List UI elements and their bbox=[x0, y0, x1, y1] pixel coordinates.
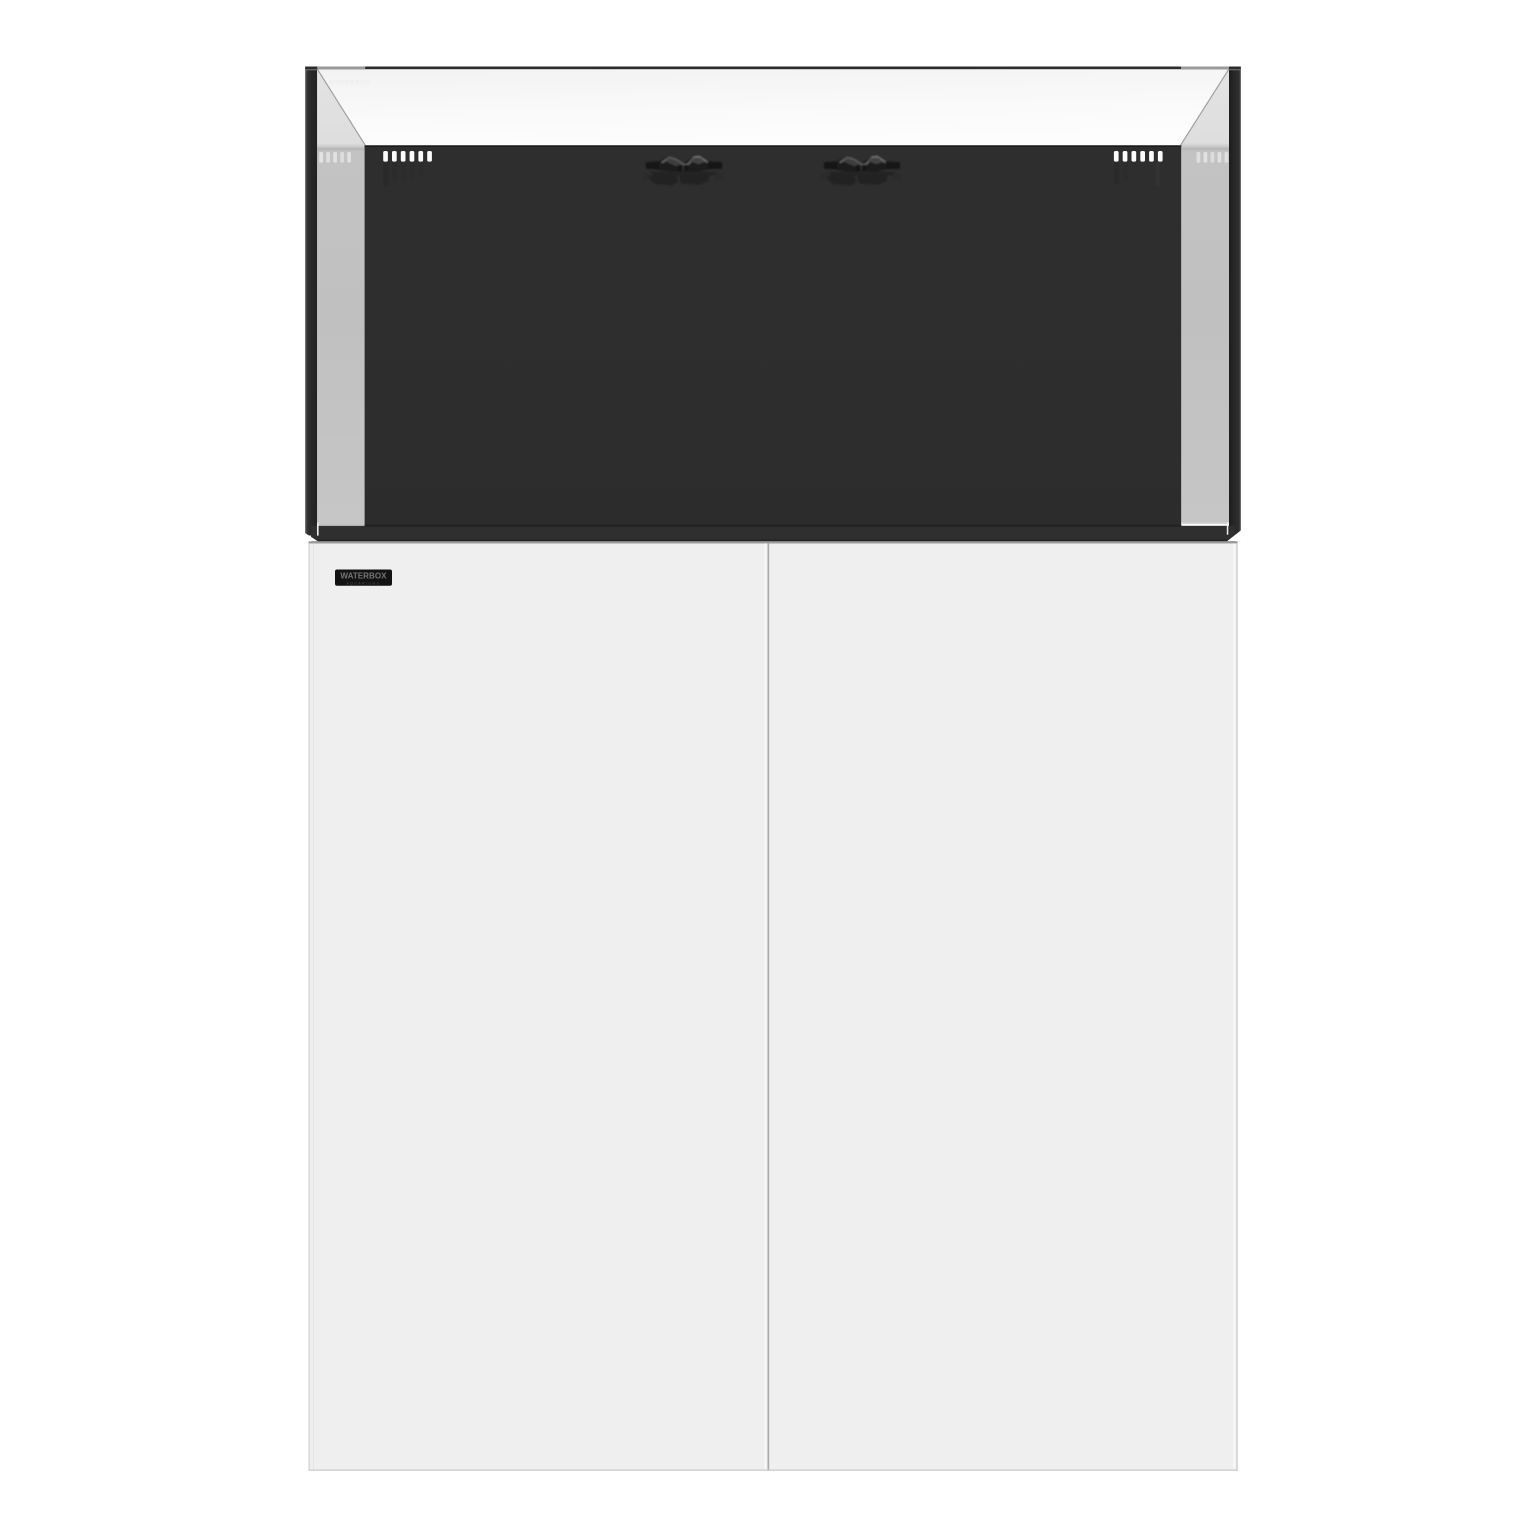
svg-text:WATERBOX: WATERBOX bbox=[329, 80, 371, 87]
svg-text:AQUARIUMS: AQUARIUMS bbox=[346, 582, 380, 586]
svg-text:WATERBOX: WATERBOX bbox=[340, 572, 387, 581]
